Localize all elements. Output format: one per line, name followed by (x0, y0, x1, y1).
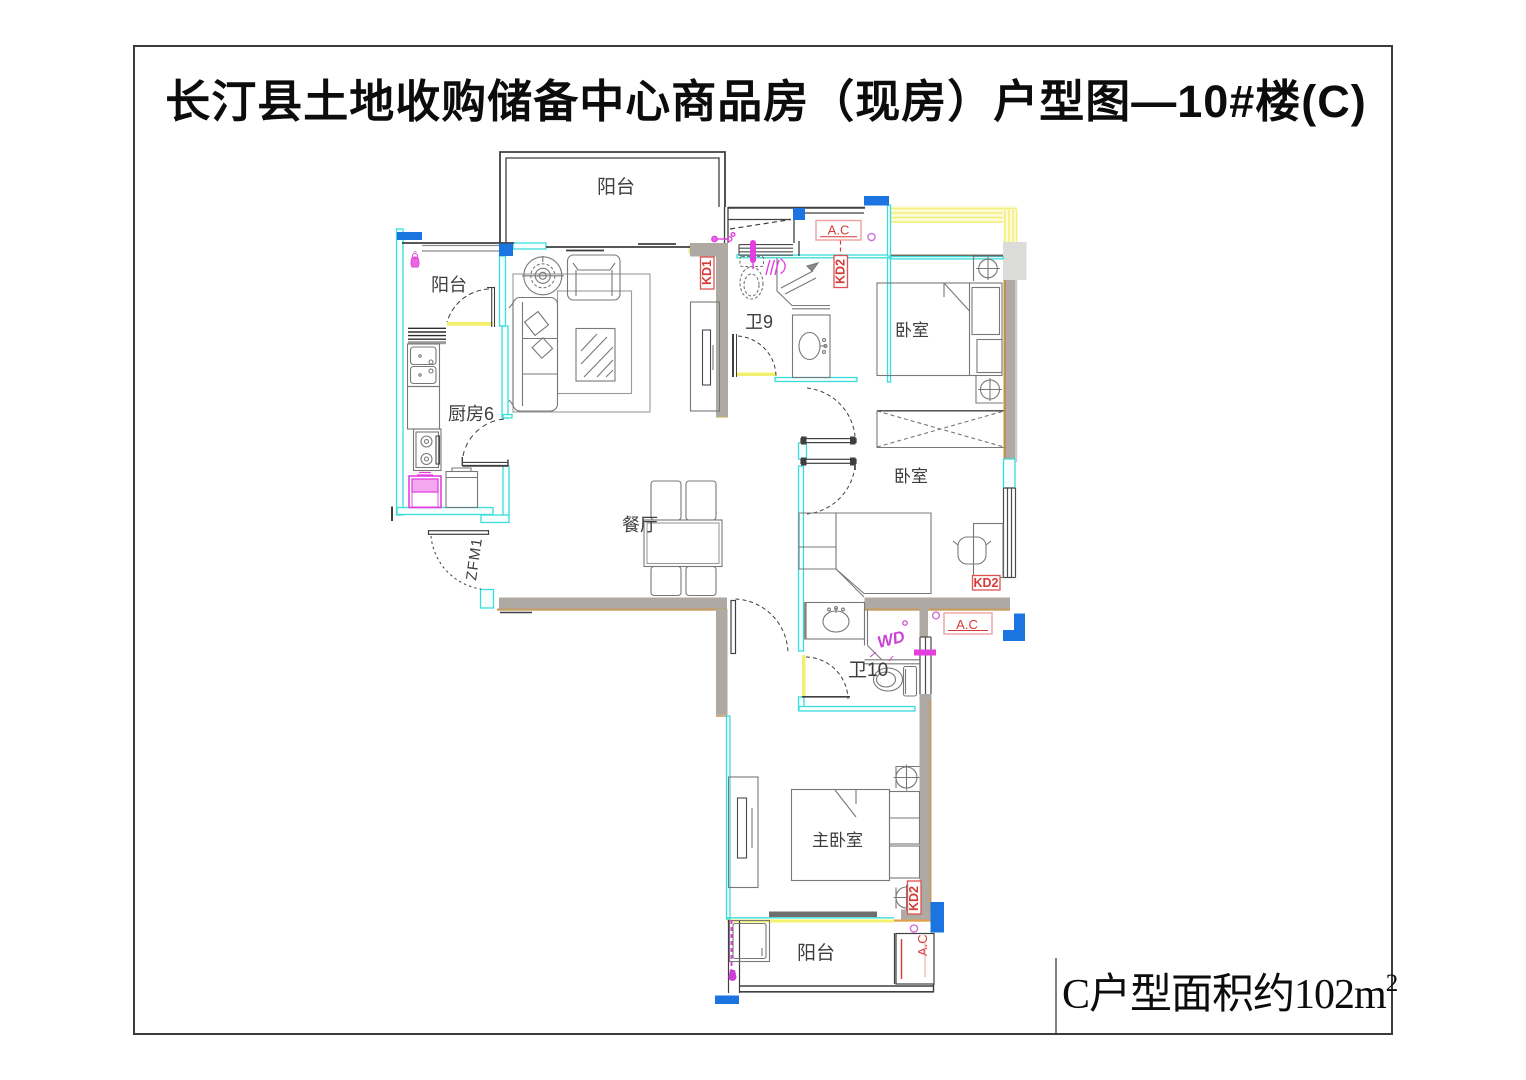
svg-text:卫10: 卫10 (848, 660, 888, 681)
svg-text:ZFM1: ZFM1 (463, 536, 486, 581)
svg-text:卫9: 卫9 (745, 312, 773, 332)
svg-text:餐厅: 餐厅 (622, 515, 658, 535)
svg-text:阳台: 阳台 (597, 176, 635, 198)
svg-text:卧室: 卧室 (895, 321, 929, 340)
svg-text:主卧室: 主卧室 (812, 831, 863, 850)
svg-text:KD2: KD2 (834, 259, 848, 284)
svg-text:A.C: A.C (828, 223, 850, 238)
svg-text:长汀县土地收购储备中心商品房（现房）户型图—10#楼(C): 长汀县土地收购储备中心商品房（现房）户型图—10#楼(C) (165, 76, 1367, 127)
svg-text:A.C: A.C (915, 934, 930, 956)
svg-text:C户型面积约102m2: C户型面积约102m2 (1062, 970, 1398, 1018)
svg-text:A.C: A.C (956, 617, 978, 632)
svg-text:阳台: 阳台 (431, 275, 467, 295)
svg-text:KD2: KD2 (973, 576, 998, 590)
svg-text:卧室: 卧室 (894, 467, 928, 486)
svg-text:阳台: 阳台 (797, 942, 835, 964)
svg-text:厨房6: 厨房6 (448, 404, 494, 424)
svg-text:KD1: KD1 (700, 260, 714, 285)
svg-text:KD2: KD2 (907, 886, 921, 911)
svg-text:WD: WD (876, 628, 907, 652)
